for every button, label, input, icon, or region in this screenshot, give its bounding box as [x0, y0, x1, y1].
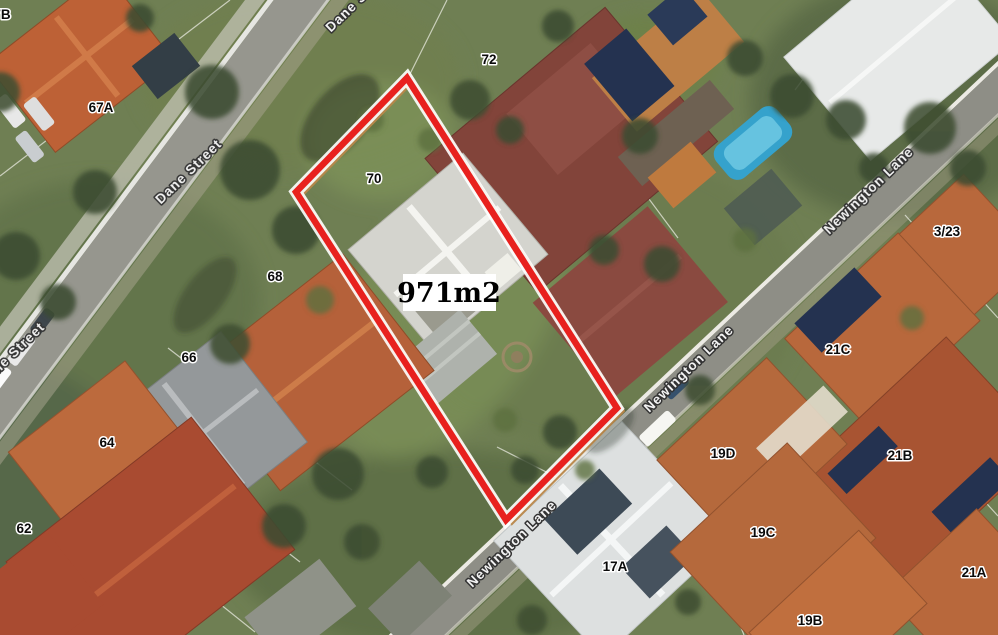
lot-label-21b: 21B — [888, 448, 913, 463]
lot-label-64: 64 — [99, 435, 115, 450]
lot-label-19d: 19D — [711, 446, 736, 461]
lot-label-68: 68 — [267, 269, 283, 284]
lot-label-7b: 7B — [0, 7, 11, 22]
area-label-text: 971m2 — [397, 278, 501, 309]
area-label: 971m2 — [397, 274, 501, 311]
lot-label-21a: 21A — [962, 565, 987, 580]
lot-label-21c: 21C — [826, 342, 851, 357]
lot-label-66: 66 — [181, 350, 197, 365]
aerial-map: 971m2 Dane Street Dane Street Dane Stree… — [0, 0, 998, 635]
lot-label-3-23: 3/23 — [934, 224, 961, 239]
lot-label-62: 62 — [16, 521, 31, 536]
lot-label-19b: 19B — [798, 613, 823, 628]
aerial-map-canvas: 971m2 Dane Street Dane Street Dane Stree… — [0, 0, 998, 635]
lot-label-70: 70 — [366, 171, 381, 186]
lot-label-72: 72 — [481, 52, 496, 67]
lot-label-19c: 19C — [751, 525, 776, 540]
lot-label-17a: 17A — [603, 559, 628, 574]
lot-label-67a: 67A — [89, 100, 114, 115]
